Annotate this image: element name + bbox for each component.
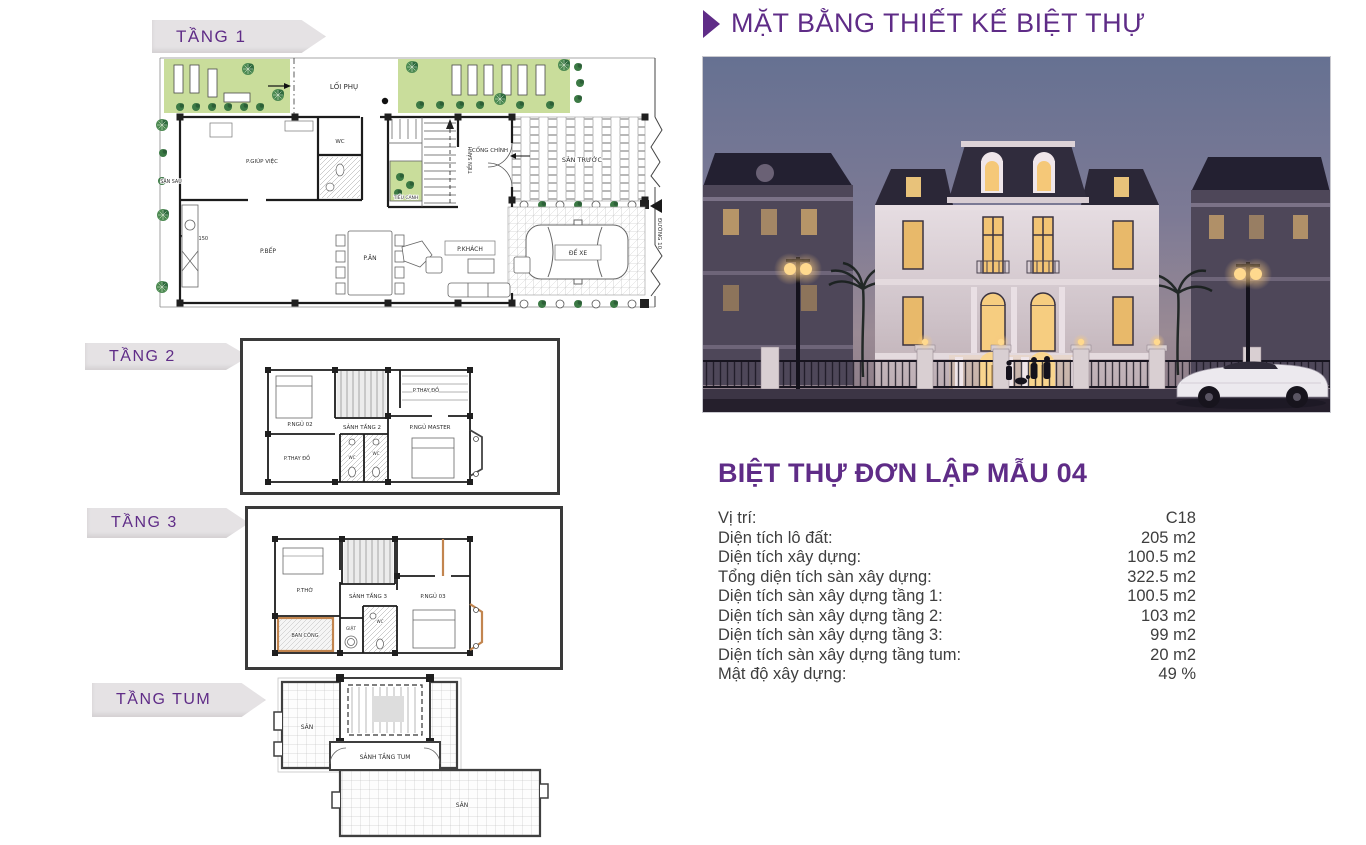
spec-row: Diện tích sàn xây dựng tầng 2: 103 m2 — [718, 607, 1196, 627]
room-label-ban-cong: BAN CÔNG — [291, 632, 318, 639]
spec-label: Diện tích sàn xây dựng tầng tum: — [718, 646, 961, 666]
spec-label: Diện tích sàn xây dựng tầng 3: — [718, 626, 943, 646]
banner-tang-3-label: TẦNG 3 — [111, 514, 178, 532]
road-label: ĐƯỜNG 10 — [656, 218, 663, 250]
villa-model-title: BIỆT THỰ ĐƠN LẬP MẪU 04 — [718, 458, 1087, 489]
page-header: MẶT BẰNG THIẾT KẾ BIỆT THỰ — [703, 8, 1146, 39]
room-label-wc2: WC — [372, 451, 379, 456]
room-label-ngu-02: P.NGỦ 02 — [287, 420, 312, 428]
spec-row: Diện tích sàn xây dựng tầng 1: 100.5 m2 — [718, 587, 1196, 607]
kitchen — [182, 205, 198, 287]
spec-row: Diện tích sàn xây dựng tầng 3: 99 m2 — [718, 626, 1196, 646]
spec-label: Tổng diện tích sàn xây dựng: — [718, 568, 932, 588]
floorplan-tang-2: P.NGỦ 02 P.THAY ĐỒ SẢNH TẦNG 2 P.THAY ĐỒ… — [240, 338, 560, 495]
room-label-tho: P.THỜ — [297, 587, 314, 594]
spec-table: Vị trí: C18 Diện tích lô đất: 205 m2 Diệ… — [718, 509, 1196, 685]
wc-floor — [320, 157, 360, 198]
spec-value: C18 — [1166, 509, 1196, 529]
floorplan-tang-3: P.THỜ SẢNH TẦNG 3 P.NGỦ 03 BAN CÔNG GIẶT… — [245, 506, 563, 670]
spec-label: Diện tích lô đất: — [718, 529, 833, 549]
spec-row: Tổng diện tích sàn xây dựng: 322.5 m2 — [718, 568, 1196, 588]
room-label-loi-phu: LỐI PHỤ — [330, 81, 358, 91]
road-arrow-icon — [650, 199, 662, 213]
room-label-wc: WC — [376, 619, 383, 624]
room-label-sanh-tang-tum: SẢNH TẦNG TUM — [360, 753, 411, 761]
villa-photo — [703, 57, 1330, 412]
room-label-ngu-master: P.NGỦ MASTER — [409, 423, 450, 431]
walls — [180, 117, 512, 303]
spec-label: Diện tích sàn xây dựng tầng 2: — [718, 607, 943, 627]
room-label-de-xe: ĐỂ XE — [569, 249, 587, 257]
arrow-icon — [703, 10, 720, 38]
room-label-wc1: WC — [348, 455, 355, 460]
room-label-an: P.ĂN — [363, 255, 376, 262]
room-label-giat: GIẶT — [346, 626, 356, 631]
room-label-giup-viec: P.GIÚP VIỆC — [246, 157, 278, 165]
spec-value: 103 m2 — [1141, 607, 1196, 627]
spec-row: Mật độ xây dựng: 49 % — [718, 665, 1196, 685]
spec-row: Diện tích sàn xây dựng tầng tum: 20 m2 — [718, 646, 1196, 666]
room-label-ngu-03: P.NGỦ 03 — [420, 592, 446, 600]
spec-value: 322.5 m2 — [1127, 568, 1196, 588]
floorplan-tang-1: ĐƯỜNG 10 LỐI PHỤ — [150, 55, 665, 320]
stair-landing — [344, 540, 394, 583]
spec-label: Mật độ xây dựng: — [718, 665, 846, 685]
banner-tang-tum: TẦNG TUM — [92, 683, 266, 717]
banner-tang-1: TẦNG 1 — [152, 20, 326, 53]
room-label-khach: P.KHÁCH — [457, 246, 483, 253]
room-label-san-trai: SÂN — [301, 724, 314, 731]
room-label-sanh-tang-3: SẢNH TẦNG 3 — [349, 592, 387, 600]
room-label-san-truoc: SÂN TRƯỚC — [562, 155, 603, 164]
room-label-bep: P.BẾP — [260, 247, 276, 255]
spec-row: Diện tích xây dựng: 100.5 m2 — [718, 548, 1196, 568]
room-label-san-phai: SÂN — [456, 802, 469, 809]
banner-tang-2: TẦNG 2 — [85, 343, 249, 370]
room-label-sanh-tang-2: SẢNH TẦNG 2 — [343, 423, 381, 431]
roof-terrace-right — [340, 770, 540, 836]
banner-tang-tum-label: TẦNG TUM — [116, 691, 211, 709]
room-label-wc: WC — [335, 139, 344, 145]
room-label-san-sau: SÂN SAU — [160, 178, 182, 185]
spec-label: Diện tích xây dựng: — [718, 548, 861, 568]
spec-label: Vị trí: — [718, 509, 757, 529]
stair-landing — [372, 696, 404, 722]
spec-value: 20 m2 — [1150, 646, 1196, 666]
spec-label: Diện tích sàn xây dựng tầng 1: — [718, 587, 943, 607]
room-label-cong-chinh: CỔNG CHÍNH — [472, 146, 508, 154]
stair-landing — [337, 371, 387, 417]
spec-row: Vị trí: C18 — [718, 509, 1196, 529]
dining-set — [336, 231, 404, 295]
banner-tang-3: TẦNG 3 — [87, 508, 249, 538]
spec-value: 99 m2 — [1150, 626, 1196, 646]
spec-value: 205 m2 — [1141, 529, 1196, 549]
banner-tang-1-label: TẦNG 1 — [176, 27, 246, 47]
spec-value: 100.5 m2 — [1127, 548, 1196, 568]
spec-row: Diện tích lô đất: 205 m2 — [718, 529, 1196, 549]
spec-value: 49 % — [1158, 665, 1196, 685]
spec-value: 100.5 m2 — [1127, 587, 1196, 607]
floorplan-tang-tum: SÂN SẢNH TẦNG TUM SÂN — [252, 672, 552, 844]
page-title: MẶT BẰNG THIẾT KẾ BIỆT THỰ — [731, 8, 1146, 39]
brochure-page: TẦNG 1 — [0, 0, 1366, 845]
banner-tang-2-label: TẦNG 2 — [109, 348, 176, 366]
